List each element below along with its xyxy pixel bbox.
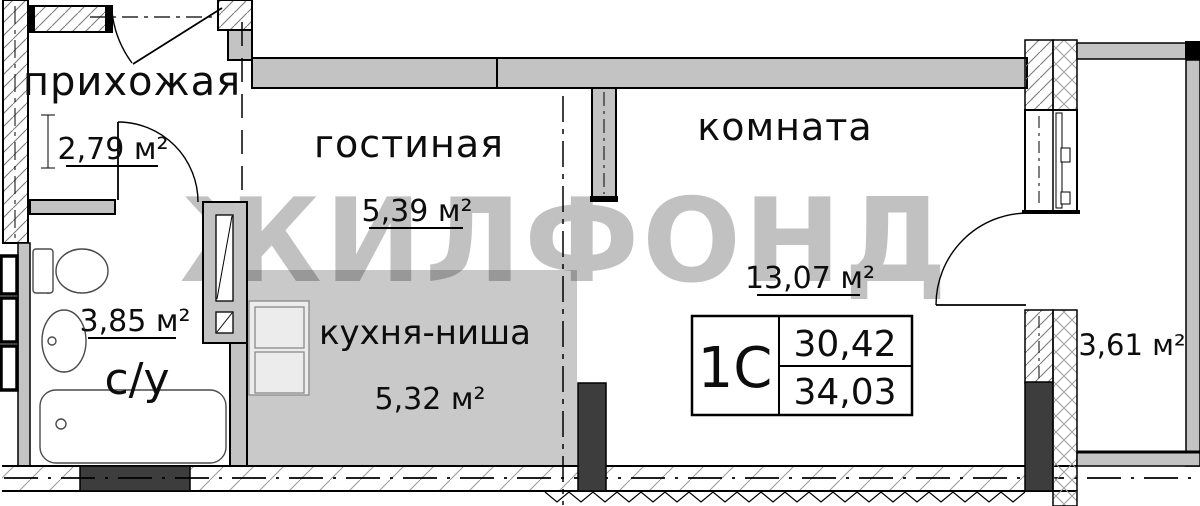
hallway-area: 2,79 м² bbox=[58, 132, 169, 167]
kitchen-area: 5,32 м² bbox=[375, 382, 486, 417]
info-box: 1С 30,42 34,03 bbox=[692, 316, 912, 415]
room-hallway: прихожая 2,79 м² bbox=[23, 59, 241, 167]
kitchen-counter bbox=[249, 301, 309, 395]
bathroom-area: 3,85 м² bbox=[80, 304, 191, 339]
floor-plan: ЖИЛФОНД bbox=[0, 0, 1200, 506]
living-label: гостиная bbox=[314, 122, 504, 166]
floor-plan-canvas: ЖИЛФОНД bbox=[0, 0, 1200, 506]
info-box-lower-value: 34,03 bbox=[793, 372, 896, 413]
room-label: комната bbox=[697, 105, 872, 149]
balcony-area: 3,61 м² bbox=[1078, 328, 1185, 362]
living-area: 5,39 м² bbox=[362, 194, 473, 229]
hallway-label: прихожая bbox=[23, 59, 241, 105]
info-box-upper-value: 30,42 bbox=[793, 324, 896, 365]
kitchen-label: кухня-ниша bbox=[319, 313, 531, 353]
room-balcony: 3,61 м² bbox=[1078, 328, 1185, 362]
info-box-plan-type: 1С bbox=[698, 336, 773, 401]
toilet bbox=[33, 249, 108, 293]
room-area: 13,07 м² bbox=[745, 261, 875, 296]
bathroom-label: с/у bbox=[104, 354, 169, 405]
